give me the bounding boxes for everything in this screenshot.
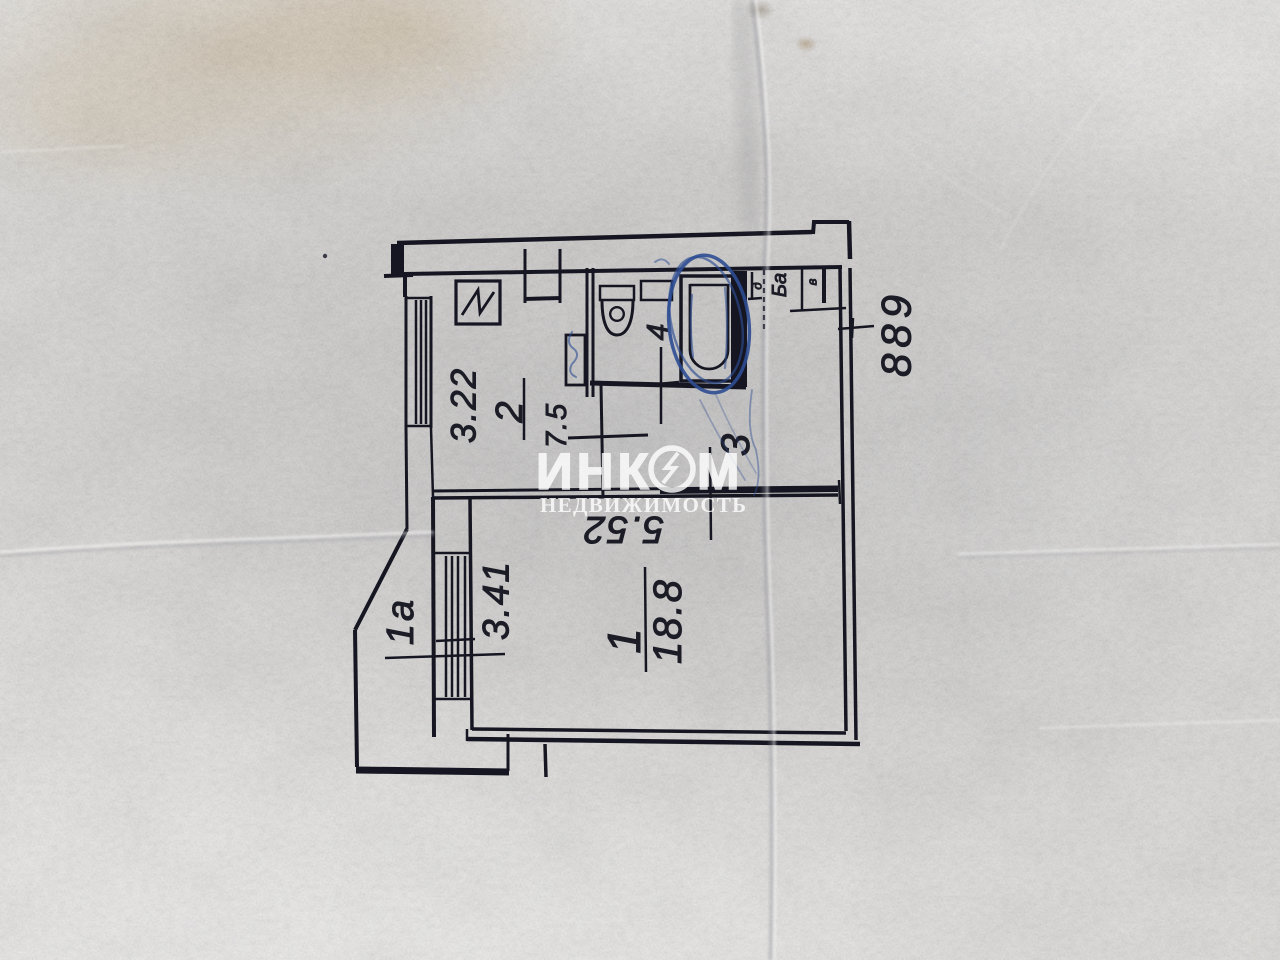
svg-text:1a: 1a — [380, 597, 422, 645]
svg-text:1: 1 — [598, 628, 650, 654]
svg-text:2: 2 — [489, 401, 531, 423]
svg-text:ИНК: ИНК — [536, 443, 653, 500]
svg-text:18.8: 18.8 — [646, 578, 690, 664]
svg-text:889: 889 — [873, 289, 920, 377]
svg-text:в: в — [805, 278, 820, 285]
svg-text:3.22: 3.22 — [445, 367, 484, 443]
svg-text:7.5: 7.5 — [541, 402, 573, 448]
svg-text:М: М — [697, 443, 739, 500]
svg-text:3.41: 3.41 — [476, 560, 517, 640]
svg-text:Ба: Ба — [769, 273, 791, 297]
svg-text:НЕДВИЖИМОСТЬ: НЕДВИЖИМОСТЬ — [540, 493, 747, 517]
